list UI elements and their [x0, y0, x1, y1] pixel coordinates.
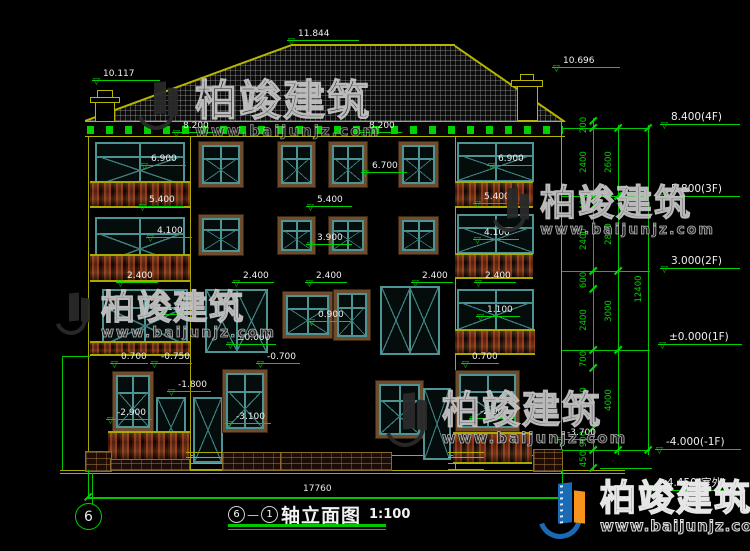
window-sash	[202, 145, 240, 184]
elevation-label: ±0.000(1F)▽	[658, 330, 742, 345]
elevation-value: 10.696	[563, 56, 595, 67]
steps	[448, 452, 484, 470]
door	[423, 388, 451, 460]
elevation-value: 0.900	[318, 310, 344, 321]
brick-wall	[85, 451, 112, 472]
elevation-value: 3.000(2F)	[671, 255, 722, 268]
dim-extension-line	[562, 350, 650, 351]
level-marker-icon: ▽	[288, 38, 295, 47]
casement-swing-mark	[404, 230, 433, 249]
elevation-value: 8.200	[183, 121, 209, 132]
level-marker-icon: ▽	[474, 237, 481, 246]
title-underline-thin	[228, 529, 386, 530]
elevation-label: 3.000(2F)▽	[660, 254, 740, 269]
wall-line	[561, 121, 562, 473]
elevation-value: 4.100	[484, 228, 510, 239]
level-marker-icon: ▽	[477, 314, 484, 323]
level-marker-icon: ▽	[462, 361, 469, 370]
elevation-label: 6.900▽	[140, 153, 186, 166]
door-swing-mark	[410, 288, 438, 353]
framed-window	[375, 380, 424, 439]
level-marker-icon: ▽	[475, 280, 482, 289]
window-sash	[380, 286, 440, 355]
level-marker-icon: ▽	[173, 130, 180, 139]
balustrade	[108, 431, 190, 461]
dim-extension-line	[593, 118, 594, 470]
dim-extension-line	[562, 196, 650, 197]
dim-extension-line	[618, 125, 619, 455]
elevation-label: 5.400▽	[473, 191, 519, 204]
title-axis-start: 6	[228, 506, 245, 523]
elevation-label: -4.000(-1F)▽	[655, 435, 741, 450]
brick-wall	[110, 459, 190, 471]
elevation-label: 10.696▽	[552, 55, 620, 68]
dimension-text: 4000	[604, 370, 616, 430]
elevation-label: 2.400▽	[474, 270, 516, 283]
dim-extension-line	[92, 473, 93, 504]
level-marker-icon: ▽	[659, 342, 666, 351]
level-marker-icon: ▽	[661, 266, 668, 275]
double-door	[380, 286, 440, 355]
level-marker-icon: ▽	[362, 170, 369, 179]
wall-line	[88, 137, 89, 470]
elevation-value: 8.200	[369, 121, 395, 132]
window-sash	[402, 220, 435, 251]
width-dim-tick-right	[558, 493, 566, 501]
level-marker-icon: ▽	[111, 361, 118, 370]
level-marker-icon: ▽	[308, 319, 315, 328]
baijun-logo-icon	[55, 291, 97, 339]
elevation-value: -0.700	[267, 352, 296, 363]
elevation-label: 1.100▽	[156, 302, 200, 315]
elevation-label: -2.900▽	[106, 407, 152, 420]
elevation-value: 2.400	[243, 271, 269, 282]
roof-ridge	[292, 44, 455, 46]
level-marker-icon: ▽	[307, 242, 314, 251]
casement-swing-mark	[334, 158, 362, 183]
elevation-label: 2.400▽	[232, 270, 274, 283]
elevation-value: 5.800(3F)	[671, 183, 722, 196]
level-marker-icon: ▽	[141, 163, 148, 172]
level-marker-icon: ▽	[359, 130, 366, 139]
level-marker-icon: ▽	[553, 65, 560, 74]
window-sash	[459, 374, 516, 428]
elevation-label: 0.700▽	[461, 351, 499, 364]
elevation-value: 1.100	[167, 303, 193, 314]
casement-swing-mark	[283, 158, 310, 183]
cad-elevation-drawing: 11.844▽10.117▽10.696▽8.200▽8.200▽6.900▽6…	[0, 0, 750, 551]
level-marker-icon: ▽	[157, 312, 164, 321]
casement-swing-mark	[381, 400, 418, 433]
elevation-label: 8.400(4F)▽	[660, 110, 740, 125]
watermark-url: www.baijunjz.com	[600, 517, 750, 535]
baijun-logo-icon	[540, 481, 596, 543]
elevation-label: -3.700▽	[556, 427, 598, 440]
elevation-value: -4.000(-1F)	[666, 436, 725, 449]
casement-swing-mark	[404, 158, 433, 183]
roof-hatch	[85, 45, 565, 121]
elevation-value: -1.800	[178, 380, 207, 391]
floor-line	[60, 473, 625, 474]
title-axis-separator: —	[247, 508, 259, 522]
door-swing-mark	[382, 288, 410, 353]
dim-extension-line	[562, 450, 650, 451]
dimension-text: 12400	[634, 259, 646, 319]
elevation-value: 5.400	[484, 192, 510, 203]
elevation-value: 2.400	[422, 271, 448, 282]
window-sash	[332, 145, 364, 184]
elevation-value: -0.750	[161, 352, 190, 363]
level-marker-icon: ▽	[139, 204, 146, 213]
window-sash	[379, 384, 420, 435]
elevation-label: 5.400▽	[138, 194, 184, 207]
framed-window	[277, 141, 316, 188]
level-marker-icon: ▽	[93, 78, 100, 87]
elevation-value: 3.900	[317, 233, 343, 244]
window-sash	[116, 375, 150, 428]
level-marker-icon: ▽	[168, 389, 175, 398]
dimension-text: 2800	[604, 204, 616, 264]
elevation-value: 1.100	[487, 305, 513, 316]
window-sash	[202, 218, 240, 252]
elevation-value: 2.400	[316, 271, 342, 282]
door-swing-mark	[425, 390, 449, 458]
level-marker-icon: ▽	[107, 417, 114, 426]
elevation-value: 5.400	[149, 195, 175, 206]
level-marker-icon: ▽	[307, 204, 314, 213]
elevation-value: -2.900	[117, 408, 146, 419]
elevation-value: 6.700	[372, 161, 398, 172]
elevation-label: 11.844▽	[287, 28, 359, 41]
elevation-label: 2.400▽	[411, 270, 453, 283]
elevation-value: ±0.000	[237, 333, 270, 344]
chimney-right-body	[517, 86, 538, 121]
framed-window	[455, 370, 520, 432]
elevation-value: 5.400	[317, 195, 343, 206]
window	[102, 289, 188, 347]
overall-width-dim: 17760	[303, 484, 332, 494]
elevation-value: 4.100	[157, 226, 183, 237]
axis-bubble-label: 6	[84, 509, 93, 525]
brick-wall	[280, 452, 392, 471]
level-marker-icon: ▽	[151, 361, 158, 370]
title-axis-end: 1	[261, 506, 278, 523]
elevation-label: 6.900▽	[487, 153, 533, 166]
elevation-value: 10.117	[103, 69, 135, 80]
level-marker-icon: ▽	[227, 342, 234, 351]
dim-extension-line	[62, 356, 90, 357]
watermark-url: www.baijunjz.com	[540, 222, 715, 238]
elevation-label: ±0.000▽	[226, 332, 276, 345]
elevation-label: 1.100▽	[476, 304, 520, 317]
dimension-text: 3000	[604, 281, 616, 341]
elevation-value: -3.700	[567, 428, 596, 439]
axis-bubble-6: 6	[75, 503, 102, 530]
level-marker-icon: ▽	[488, 163, 495, 172]
framed-window	[398, 216, 439, 255]
width-dim-line	[88, 497, 562, 499]
level-marker-icon: ▽	[661, 122, 668, 131]
dim-extension-line	[648, 125, 649, 455]
casement-swing-mark	[204, 229, 238, 250]
level-marker-icon: ▽	[653, 488, 660, 497]
elevation-value: 8.400(4F)	[671, 111, 722, 124]
level-marker-icon: ▽	[306, 280, 313, 289]
level-marker-icon: ▽	[474, 201, 481, 210]
elevation-label: 2.400▽	[305, 270, 347, 283]
eave-dentils	[87, 126, 563, 134]
casement-swing-mark	[204, 158, 238, 183]
elevation-label: 5.400▽	[306, 194, 352, 207]
level-marker-icon: ▽	[147, 235, 154, 244]
elevation-label: 8.200▽	[172, 120, 216, 133]
level-marker-icon: ▽	[117, 280, 124, 289]
elevation-label: 5.800(3F)▽	[660, 182, 740, 197]
window-sash	[102, 289, 188, 347]
elevation-label: 4.100▽	[473, 227, 519, 240]
level-marker-icon: ▽	[412, 280, 419, 289]
dim-extension-line	[600, 468, 652, 469]
title-underline-thick	[228, 524, 386, 527]
elevation-value: 11.844	[298, 29, 330, 40]
elevation-value: 6.900	[151, 154, 177, 165]
window-sash	[423, 388, 451, 460]
elevation-value: -4.450(室外)	[663, 477, 726, 490]
elevation-label: 8.200▽	[358, 120, 402, 133]
elevation-value: 2.400	[127, 271, 153, 282]
elevation-label: 6.700▽	[361, 160, 407, 173]
elevation-value: 0.700	[121, 352, 147, 363]
elevation-label: -0.750▽	[150, 351, 192, 364]
elevation-label: -0.700▽	[256, 351, 300, 364]
level-marker-icon: ▽	[557, 437, 564, 446]
elevation-label: -2.900▽	[469, 406, 515, 419]
level-marker-icon: ▽	[226, 421, 233, 430]
level-marker-icon: ▽	[661, 194, 668, 203]
level-marker-icon: ▽	[233, 280, 240, 289]
dimension-text: 2600	[604, 132, 616, 192]
eave-band	[85, 121, 565, 137]
level-marker-icon: ▽	[656, 447, 663, 456]
elevation-label: -3.100▽	[225, 411, 271, 424]
elevation-value: -2.900	[480, 407, 509, 418]
framed-window	[198, 141, 244, 188]
elevation-label: 0.700▽	[110, 351, 148, 364]
elevation-label: -4.450(室外)▽	[652, 476, 736, 491]
elevation-label: 2.400▽	[116, 270, 158, 283]
elevation-value: -3.100	[236, 412, 265, 423]
framed-window	[198, 214, 244, 256]
dim-extension-line	[562, 128, 650, 129]
framed-window	[112, 371, 154, 432]
elevation-label: -1.800▽	[167, 379, 211, 392]
window-sash	[281, 145, 312, 184]
elevation-value: 6.900	[498, 154, 524, 165]
level-marker-icon: ▽	[470, 416, 477, 425]
elevation-label: 4.100▽	[146, 225, 192, 238]
elevation-value: 2.400	[485, 271, 511, 282]
elevation-value: 0.700	[472, 352, 498, 363]
title-scale: 1:100	[369, 507, 410, 522]
chimney-left-body	[95, 102, 115, 123]
level-marker-icon: ▽	[257, 361, 264, 370]
elevation-label: 3.900▽	[306, 232, 352, 245]
elevation-value: ±0.000(1F)	[669, 331, 729, 344]
dim-extension-line	[62, 356, 63, 470]
elevation-label: 10.117▽	[92, 68, 160, 81]
brick-wall	[533, 449, 563, 472]
elevation-label: 0.900▽	[307, 309, 351, 322]
